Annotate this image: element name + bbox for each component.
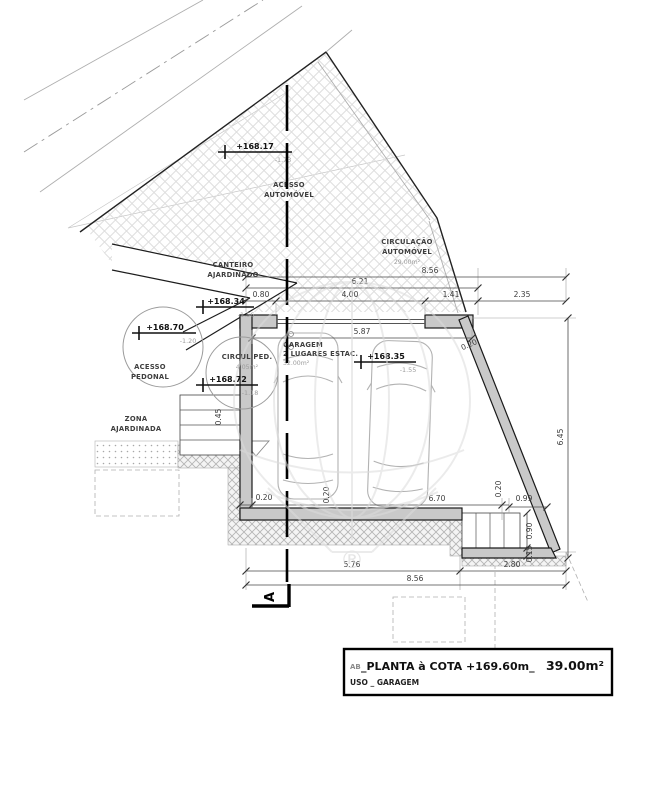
dim-top-400: 4.00 [342,290,359,299]
dim-door-587: 5.87 [354,327,371,336]
floor-plan-page: 8.56 6.21 0.80 4.00 1.41 2.35 5.87 0.20 … [0,0,645,800]
level-168-34-depth: -1.56 [238,311,255,319]
dim-steps-045: 0.45 [214,408,223,425]
level-168-17-depth: -1.73 [275,156,292,164]
title-block-area: 39.00m² [546,658,604,673]
dim-low-856: 8.56 [407,574,424,583]
dim-top-235: 2.35 [514,290,531,299]
dim-bot-020-right: 0.20 [494,480,503,497]
dim-stair-015: 0.15 [525,545,534,562]
label-zona-1: ZONA [125,415,148,423]
floor-plan-drawing: 8.56 6.21 0.80 4.00 1.41 2.35 5.87 0.20 … [0,0,645,800]
label-canteiro-1: CANTEIRO [213,261,254,269]
dim-top-141: 1.41 [443,290,460,299]
title-block-code: AB [350,663,361,671]
label-acesso-automovel-1: ACESSO [273,181,305,189]
dim-bot-099: 0.99 [516,494,533,503]
dim-low-280: 2.80 [504,560,521,569]
level-168-35-depth: -1.55 [400,366,417,374]
stipple-strip [95,441,178,467]
label-acesso-pedonal-2: PEDONAL [131,373,169,381]
level-168-34: +168.34 [207,297,245,306]
label-circulacao-2: AUTOMÓVEL [382,247,432,256]
label-zona-2: AJARDINADA [111,425,162,433]
label-acesso-automovel-2: AUTOMÓVEL [264,190,314,199]
label-canteiro-2: AJARDINADO [207,271,258,279]
label-circulacao-area: 29.00m² [394,259,421,266]
title-block-use: USO _ GARAGEM [350,678,419,687]
stairs-right [462,513,520,548]
dim-stair-090: 0.90 [525,522,534,539]
section-marker-label: A [263,592,278,602]
label-acesso-pedonal-1: ACESSO [134,363,166,371]
label-circul-ped: CIRCUL PED. [222,353,273,361]
level-168-17: +168.17 [236,142,274,151]
level-168-72: +168.72 [209,375,247,384]
dim-top-856: 8.56 [422,266,439,275]
dim-right-645: 6.45 [556,428,565,445]
title-block: AB _PLANTA à COTA +169.60m_ 39.00m² USO … [344,649,612,695]
level-168-70-depth: -1.20 [180,337,197,345]
level-168-70: +168.70 [146,323,184,332]
label-circulacao-1: CIRCULAÇÃO [381,237,432,246]
dim-top-080: 0.80 [253,290,270,299]
wall-left [240,315,252,520]
label-garagem-sub: 2 LUGARES ESTAC. [283,350,358,358]
label-garagem: GARAGEM [283,341,323,349]
title-block-title: _PLANTA à COTA +169.60m_ [361,660,535,673]
registered-mark-icon: ® [340,546,364,574]
level-168-72-depth: -1.18 [242,389,259,397]
wall-below-stairs [462,548,556,558]
